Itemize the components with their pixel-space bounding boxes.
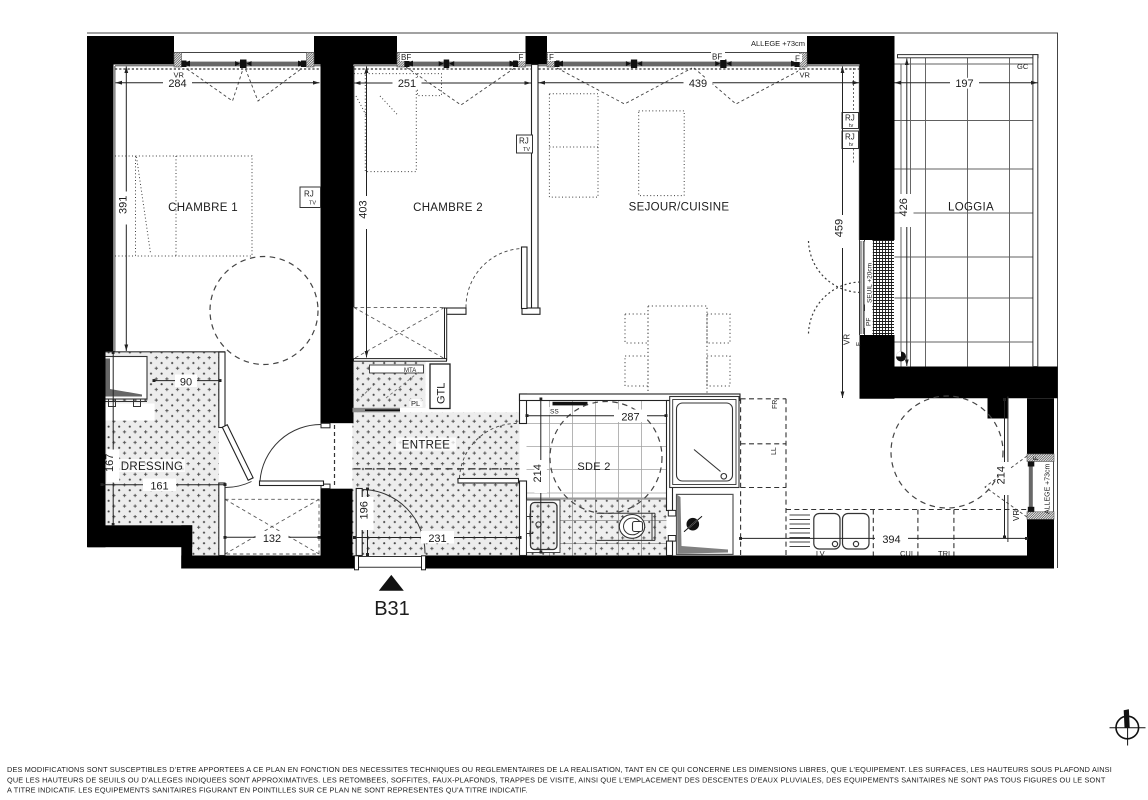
svg-text:F: F xyxy=(795,55,800,64)
svg-text:VR: VR xyxy=(1012,510,1021,521)
svg-text:LOGGIA: LOGGIA xyxy=(948,202,994,214)
svg-text:PF: PF xyxy=(866,318,873,326)
svg-text:GC: GC xyxy=(1017,62,1029,71)
svg-text:VR: VR xyxy=(800,70,811,79)
svg-text:214: 214 xyxy=(532,464,544,482)
svg-text:SEUIL +20cm: SEUIL +20cm xyxy=(867,263,874,303)
svg-text:TV: TV xyxy=(523,147,530,153)
svg-text:391: 391 xyxy=(117,196,129,214)
svg-text:251: 251 xyxy=(398,78,416,90)
svg-text:DES MODIFICATIONS SONT SUSCEPT: DES MODIFICATIONS SONT SUSCEPTIBLES D'ET… xyxy=(7,765,1112,774)
svg-text:ENTREE: ENTREE xyxy=(402,440,450,452)
svg-text:tv: tv xyxy=(849,123,854,129)
svg-text:CHAMBRE 1: CHAMBRE 1 xyxy=(168,202,238,214)
svg-text:QUE LES HAUTEURS DE SEUILS OU: QUE LES HAUTEURS DE SEUILS OU D'ALLEGES … xyxy=(7,775,1106,784)
svg-text:VR: VR xyxy=(843,334,852,345)
svg-text:PL: PL xyxy=(411,399,420,408)
svg-text:403: 403 xyxy=(358,200,370,218)
svg-text:MTA: MTA xyxy=(404,368,416,374)
svg-text:TRI: TRI xyxy=(938,549,950,558)
svg-text:RJ: RJ xyxy=(519,137,529,146)
svg-text:ALLEGE +73cm: ALLEGE +73cm xyxy=(751,39,805,48)
svg-text:F: F xyxy=(856,342,863,346)
svg-text:CUI: CUI xyxy=(900,549,913,558)
svg-text:B31: B31 xyxy=(374,598,410,620)
svg-text:tv: tv xyxy=(849,142,854,148)
svg-text:132: 132 xyxy=(263,533,281,545)
svg-text:RJ: RJ xyxy=(845,133,855,142)
svg-text:RJ: RJ xyxy=(845,114,855,123)
svg-text:197: 197 xyxy=(955,78,973,90)
svg-text:DRESSING: DRESSING xyxy=(121,461,183,473)
svg-text:F: F xyxy=(549,53,554,62)
svg-text:FR: FR xyxy=(772,400,779,409)
svg-text:CHAMBRE 2: CHAMBRE 2 xyxy=(413,202,483,214)
svg-text:RJ: RJ xyxy=(304,190,314,199)
svg-text:167: 167 xyxy=(104,454,116,472)
svg-text:426: 426 xyxy=(898,198,910,216)
svg-text:SEJOUR/CUISINE: SEJOUR/CUISINE xyxy=(629,202,730,214)
svg-text:BF: BF xyxy=(712,53,722,62)
svg-text:90: 90 xyxy=(180,376,192,388)
svg-text:196: 196 xyxy=(359,501,371,519)
svg-text:BF: BF xyxy=(401,53,411,62)
svg-text:SS: SS xyxy=(550,409,559,416)
svg-text:LV: LV xyxy=(816,549,825,558)
svg-text:394: 394 xyxy=(882,534,900,546)
svg-text:F: F xyxy=(1033,456,1040,460)
svg-text:GTL: GTL xyxy=(436,383,448,404)
svg-text:A TITRE INDICATIF. LES EQUIPEM: A TITRE INDICATIF. LES EQUIPEMENTS SANIT… xyxy=(7,786,528,795)
svg-text:287: 287 xyxy=(621,411,639,423)
svg-text:ALLEGE +73cm: ALLEGE +73cm xyxy=(1045,463,1052,514)
svg-text:161: 161 xyxy=(150,480,168,492)
svg-text:284: 284 xyxy=(168,78,186,90)
svg-text:SDE 2: SDE 2 xyxy=(577,461,610,473)
svg-text:231: 231 xyxy=(428,533,446,545)
svg-text:TV: TV xyxy=(309,201,316,207)
svg-text:459: 459 xyxy=(834,219,846,237)
svg-text:LL: LL xyxy=(771,447,778,455)
svg-text:439: 439 xyxy=(689,78,707,90)
svg-text:214: 214 xyxy=(996,466,1008,484)
svg-text:F: F xyxy=(519,53,524,62)
